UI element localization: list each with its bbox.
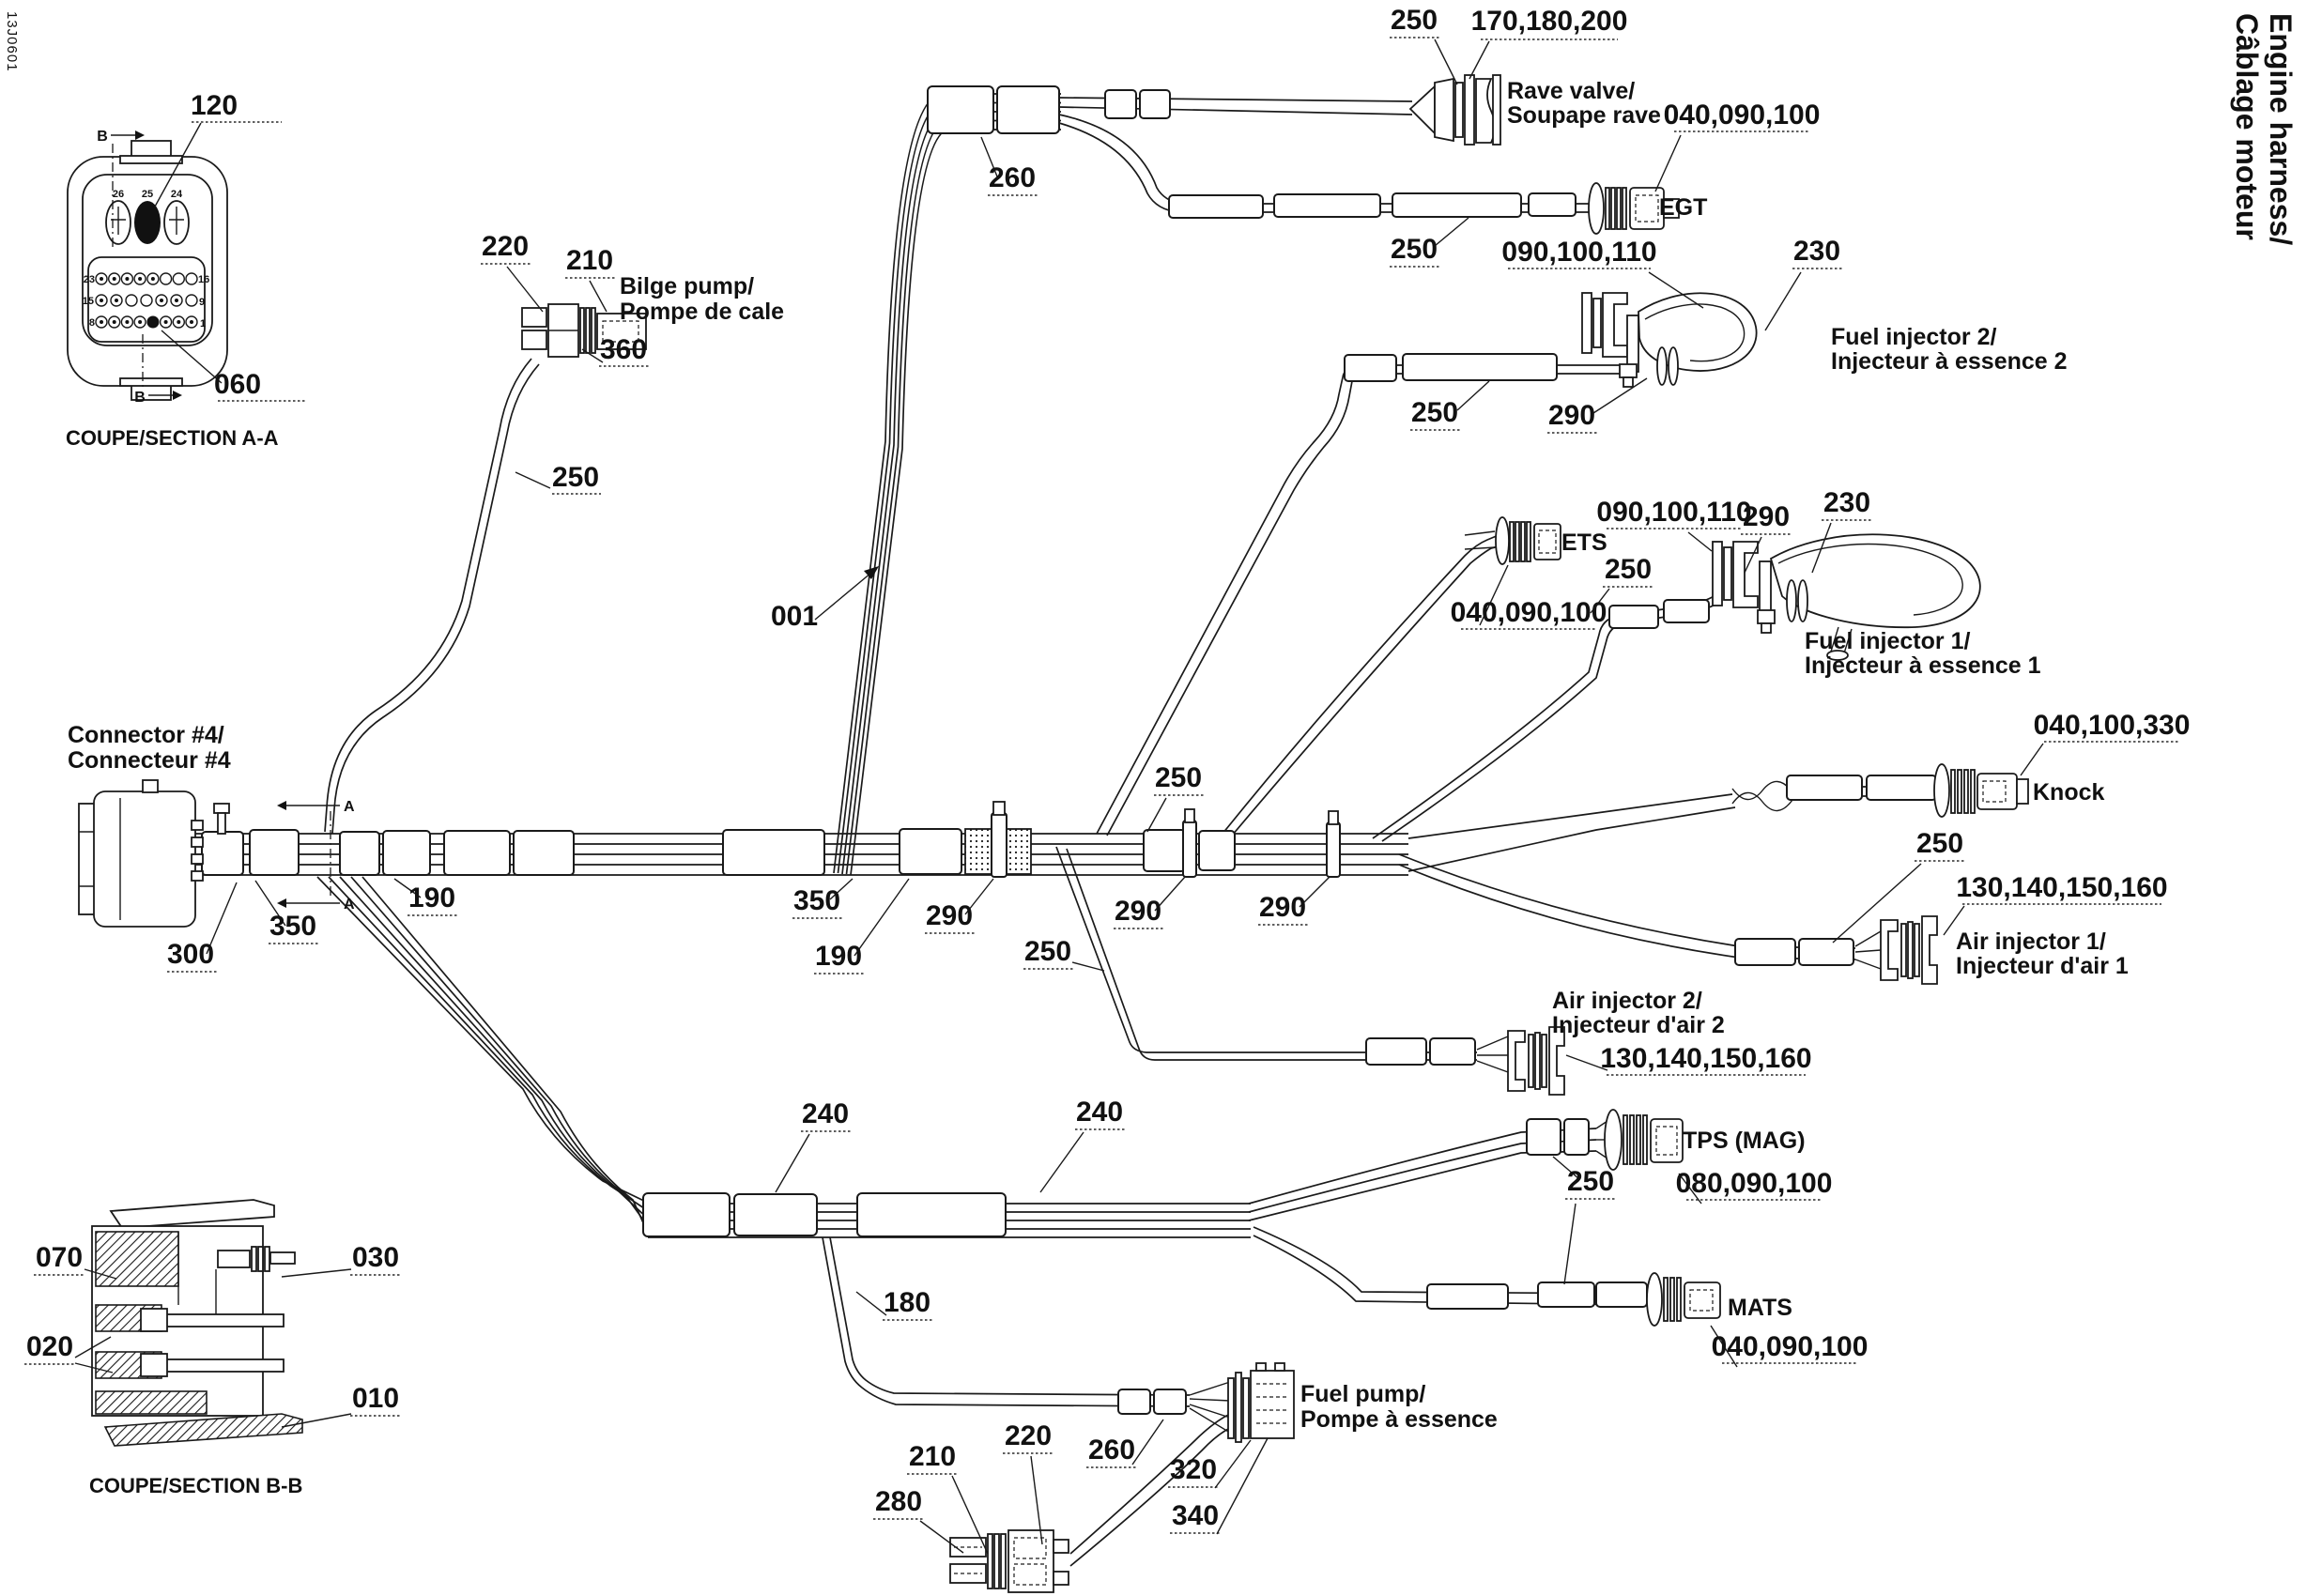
svg-text:180: 180: [884, 1287, 930, 1318]
callout-190-1: 190: [394, 879, 458, 915]
callout-040-100-330: 040,100,330: [2021, 710, 2190, 775]
svg-text:250: 250: [1916, 828, 1963, 859]
section-aa-caption: COUPE/SECTION A-A: [66, 426, 279, 450]
callout-220-bilge: 220: [481, 231, 543, 312]
callout-260-top: 260: [981, 137, 1038, 195]
svg-text:220: 220: [1005, 1420, 1052, 1451]
callout-320: 320: [1168, 1440, 1251, 1488]
fuel-pump-sender-connector: [950, 1530, 1069, 1592]
svg-text:070: 070: [36, 1242, 83, 1273]
svg-text:020: 020: [26, 1331, 73, 1362]
section-bb-drawing: COUPE/SECTION B-B: [89, 1200, 302, 1497]
tps-label: TPS (MAG): [1683, 1128, 1806, 1154]
callout-350-2: 350: [792, 879, 853, 918]
svg-text:010: 010: [352, 1383, 399, 1414]
svg-text:230: 230: [1823, 487, 1870, 518]
callout-030: 030: [282, 1242, 401, 1277]
svg-text:210: 210: [566, 245, 613, 276]
view-letter-b-top: B: [97, 129, 108, 145]
svg-text:250: 250: [1411, 397, 1458, 428]
svg-text:340: 340: [1172, 1500, 1219, 1531]
callout-180: 180: [856, 1287, 933, 1320]
svg-text:090,100,110: 090,100,110: [1596, 497, 1751, 528]
svg-text:190: 190: [408, 882, 455, 913]
svg-text:290: 290: [926, 900, 973, 931]
svg-text:001: 001: [771, 601, 818, 632]
page-title-line2: Câblage moteur: [2230, 13, 2264, 240]
section-bb-caption: COUPE/SECTION B-B: [89, 1474, 302, 1497]
svg-text:290: 290: [1115, 896, 1161, 927]
fuel-pump-label-1: Fuel pump/: [1300, 1381, 1425, 1407]
svg-text:320: 320: [1170, 1454, 1217, 1485]
callout-250-top: 250: [1390, 5, 1457, 84]
svg-text:240: 240: [1076, 1097, 1123, 1128]
callout-250-bilge-wire: 250: [515, 462, 601, 494]
air-injector-1-label-2: Injecteur d'air 1: [1956, 953, 2129, 979]
bilge-pump-label-2: Pompe de cale: [620, 299, 784, 325]
pin-1: 1: [200, 318, 206, 330]
pin-9: 9: [199, 297, 205, 308]
svg-text:030: 030: [352, 1242, 399, 1273]
svg-text:250: 250: [1567, 1166, 1614, 1197]
pin-26: 26: [113, 189, 124, 200]
callout-090-100-110-fi1: 090,100,110: [1596, 497, 1751, 551]
callout-240-1: 240: [776, 1098, 852, 1192]
callout-001: 001: [771, 566, 879, 632]
svg-text:060: 060: [214, 369, 261, 400]
svg-text:250: 250: [1391, 5, 1438, 36]
fuel-injector-1-label-2: Injecteur à essence 1: [1805, 652, 2041, 679]
air-injector-1-connector: [1881, 916, 1937, 984]
svg-text:240: 240: [802, 1098, 849, 1129]
svg-text:350: 350: [793, 885, 840, 916]
svg-text:260: 260: [1088, 1435, 1135, 1466]
ets-label: ETS: [1561, 529, 1607, 556]
fuel-injector-2-label-1: Fuel injector 2/: [1831, 324, 1996, 350]
svg-text:040,090,100: 040,090,100: [1451, 597, 1607, 628]
callout-130-ai2: 130,140,150,160: [1566, 1043, 1812, 1075]
fuel-pump-label-2: Pompe à essence: [1300, 1406, 1498, 1433]
svg-text:190: 190: [815, 941, 862, 972]
view-letter-a-top: A: [344, 799, 355, 815]
svg-text:280: 280: [875, 1486, 922, 1517]
callout-040-090-100-ets: 040,090,100: [1451, 565, 1607, 629]
view-letter-a-bottom: A: [344, 897, 355, 913]
svg-text:250: 250: [1391, 234, 1438, 265]
page-title-line1: Engine harness/: [2264, 13, 2298, 245]
svg-text:120: 120: [191, 90, 238, 121]
knock-connector: [1934, 764, 2028, 817]
svg-text:250: 250: [1605, 554, 1652, 585]
svg-text:290: 290: [1548, 400, 1595, 431]
callout-290-1: 290: [925, 879, 993, 933]
svg-text:290: 290: [1259, 892, 1306, 923]
callout-250-knock: 250: [1833, 828, 1965, 943]
document-number: 13J0601: [4, 11, 20, 72]
svg-text:170,180,200: 170,180,200: [1471, 6, 1628, 37]
svg-text:090,100,110: 090,100,110: [1501, 237, 1656, 268]
air-injector-2-label-1: Air injector 2/: [1552, 988, 1702, 1014]
callout-340: 340: [1170, 1438, 1268, 1534]
svg-text:350: 350: [269, 911, 316, 942]
air-injector-1-label-1: Air injector 1/: [1956, 928, 2106, 955]
svg-text:250: 250: [552, 462, 599, 493]
svg-text:040,100,330: 040,100,330: [2034, 710, 2191, 741]
callout-260-pump: 260: [1086, 1420, 1163, 1467]
svg-text:260: 260: [989, 162, 1036, 193]
pin-23: 23: [84, 274, 95, 285]
connector4-label-1: Connector #4/: [68, 722, 224, 748]
callouts: 120 060 220 210 360 250 001 300 350 190 …: [24, 5, 2190, 1554]
pin-24: 24: [171, 189, 183, 200]
svg-text:080,090,100: 080,090,100: [1676, 1168, 1833, 1199]
callout-230-fi2: 230: [1765, 236, 1843, 330]
callout-040-090-100-mats: 040,090,100: [1711, 1326, 1868, 1367]
callout-350-1: 350: [255, 881, 319, 944]
bilge-pump-label-1: Bilge pump/: [620, 273, 754, 299]
pin-8: 8: [89, 317, 95, 329]
mats-connector: [1647, 1273, 1720, 1326]
rave-valve-label-2: Soupape rave: [1507, 102, 1661, 129]
view-letter-b-bottom: B: [134, 390, 146, 406]
svg-text:230: 230: [1793, 236, 1840, 267]
svg-text:300: 300: [167, 939, 214, 970]
harness-sleeves: [202, 86, 1936, 1414]
knock-label: Knock: [2033, 779, 2105, 806]
parts-diagram-page: B B 26 25 24 23 16 15 9 8 1 COUPE/SECTIO…: [0, 0, 2307, 1596]
svg-text:290: 290: [1743, 501, 1790, 532]
callout-250-fi2: 250: [1410, 381, 1489, 430]
callout-240-2: 240: [1040, 1097, 1126, 1192]
callout-080-090-100: 080,090,100: [1676, 1168, 1833, 1204]
callout-040-090-100-egt: 040,090,100: [1655, 100, 1820, 192]
pin-16: 16: [198, 274, 209, 285]
svg-text:210: 210: [909, 1441, 956, 1472]
callout-170-180-200: 170,180,200: [1469, 6, 1627, 79]
pin-25: 25: [142, 189, 153, 200]
svg-text:040,090,100: 040,090,100: [1712, 1331, 1869, 1362]
svg-text:040,090,100: 040,090,100: [1664, 100, 1821, 130]
rave-valve-label-1: Rave valve/: [1507, 78, 1635, 104]
callout-130-ai1: 130,140,150,160: [1944, 872, 2168, 935]
svg-text:130,140,150,160: 130,140,150,160: [1956, 872, 2167, 903]
pin-15: 15: [83, 296, 94, 307]
svg-text:250: 250: [1155, 762, 1202, 793]
fuel-injector-1-label-1: Fuel injector 1/: [1805, 628, 1970, 654]
mats-label: MATS: [1728, 1295, 1792, 1321]
callout-210-bilge: 210: [565, 245, 616, 312]
svg-text:130,140,150,160: 130,140,150,160: [1600, 1043, 1811, 1074]
connector4-label-2: Connecteur #4: [68, 747, 231, 774]
callout-220-pump: 220: [1003, 1420, 1054, 1544]
callout-280: 280: [873, 1486, 963, 1553]
fuel-pump-connector: [1228, 1363, 1294, 1442]
tps-connector: [1605, 1110, 1683, 1170]
callout-290-2: 290: [1114, 877, 1185, 928]
svg-text:360: 360: [600, 334, 647, 365]
rave-valve-connector: [1410, 75, 1500, 145]
callout-250-egt-sleeve: 250: [1390, 218, 1469, 267]
callout-250-tps-mats: 250: [1553, 1157, 1616, 1284]
air-injector-2-label-2: Injecteur d'air 2: [1552, 1012, 1725, 1038]
egt-label: EGT: [1659, 194, 1707, 221]
svg-text:220: 220: [482, 231, 529, 262]
engine-harness-diagram: B B 26 25 24 23 16 15 9 8 1 COUPE/SECTIO…: [0, 0, 2307, 1596]
fuel-injector-2-label-2: Injecteur à essence 2: [1831, 348, 2068, 375]
svg-text:250: 250: [1024, 936, 1071, 967]
fuel-injector-2: [1582, 293, 1757, 387]
callout-290-3: 290: [1258, 877, 1330, 925]
